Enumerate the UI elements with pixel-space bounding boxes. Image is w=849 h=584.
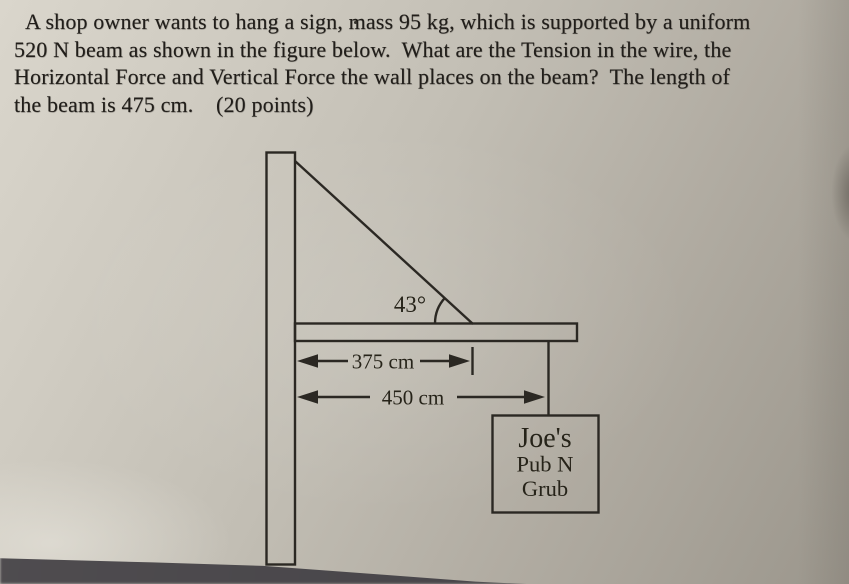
support-wire (295, 161, 473, 324)
angle-arc (435, 298, 445, 324)
beam-and-sign-figure: 43° 375 cm 450 cm Joe's Pub N Grub (0, 0, 849, 584)
arrowhead-right-icon (524, 390, 545, 404)
dimension-375: 375 cm (297, 347, 473, 375)
worksheet-photo: A shop owner wants to hang a sign, mass … (0, 0, 849, 584)
arrowhead-left-icon (297, 390, 318, 404)
sign-text-line: Pub N (517, 452, 574, 477)
photo-top-edge (0, 0, 849, 4)
beam (295, 324, 577, 342)
arrowhead-right-icon (449, 354, 470, 368)
dimension-450: 450 cm (297, 386, 545, 410)
sign-text-line: Joe's (518, 423, 571, 454)
dimension-label: 375 cm (352, 350, 414, 374)
angle-label: 43° (394, 292, 426, 317)
sign-text-line: Grub (522, 476, 568, 501)
dimension-label: 450 cm (382, 386, 444, 410)
arrowhead-left-icon (297, 354, 318, 368)
wall-post (267, 153, 296, 565)
